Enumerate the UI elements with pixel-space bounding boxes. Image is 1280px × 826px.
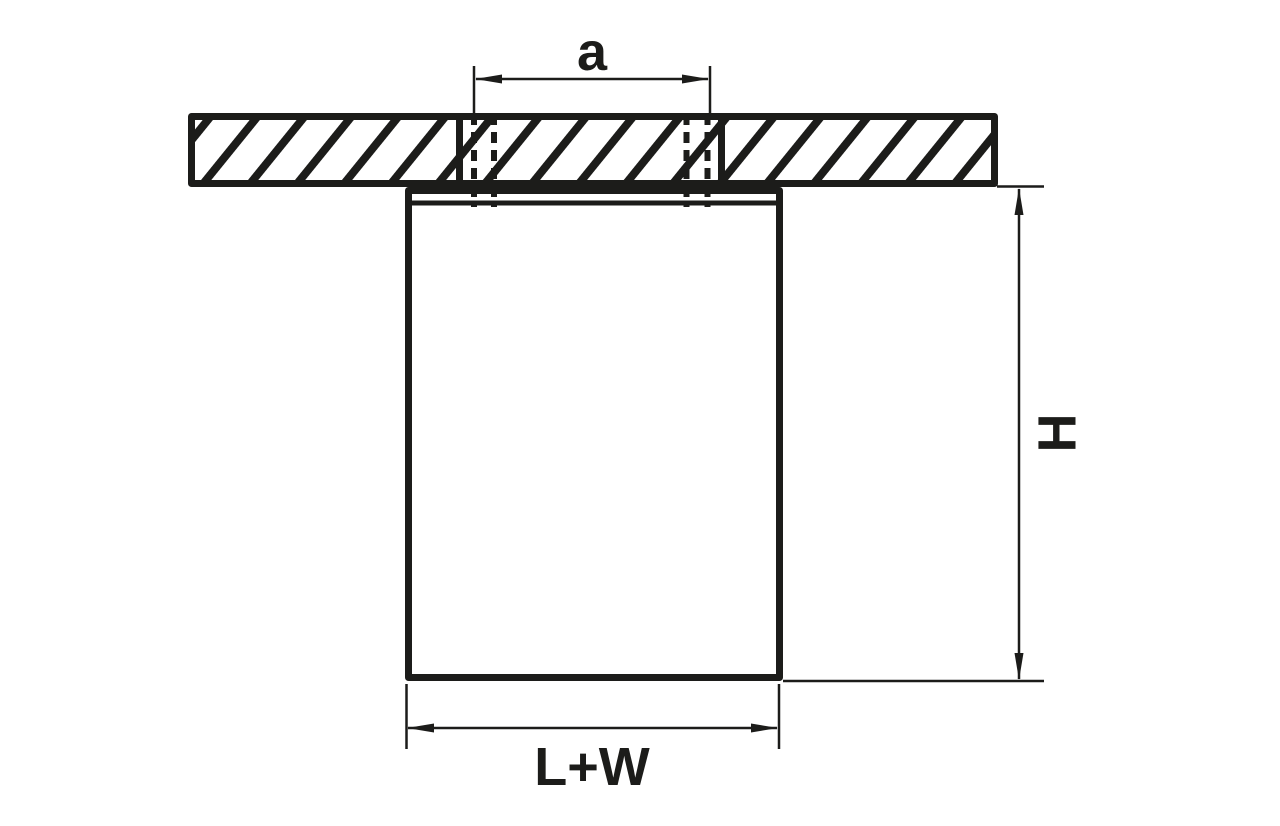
dimension-h: H	[783, 187, 1087, 682]
dimension-lw: L+W	[407, 684, 780, 797]
dimension-h-arrow-bottom	[1015, 653, 1024, 680]
dimension-a-label: a	[577, 22, 608, 82]
dimension-h-label: H	[1027, 414, 1087, 453]
fixture-body	[409, 191, 780, 678]
technical-drawing-canvas: a H L+W	[0, 0, 1280, 826]
ceiling-hatching	[192, 117, 995, 184]
dimension-lw-arrow-right	[751, 724, 778, 733]
fixture-outline	[409, 191, 780, 678]
ceiling-cross-section	[192, 114, 995, 186]
dimension-a-arrow-right	[682, 75, 709, 84]
dimension-a-arrow-left	[475, 75, 502, 84]
dimension-lw-label: L+W	[534, 737, 650, 797]
dimension-h-arrow-top	[1015, 188, 1024, 215]
dimension-a: a	[474, 22, 710, 113]
installation-diagram: a H L+W	[0, 0, 1280, 826]
dimension-lw-arrow-left	[407, 724, 434, 733]
